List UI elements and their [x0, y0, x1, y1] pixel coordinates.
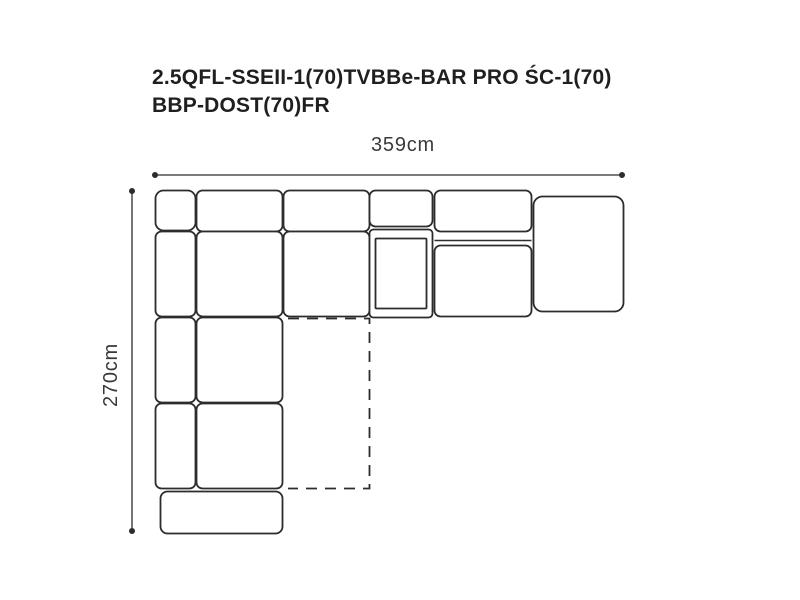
backrest-segment-2: [197, 191, 283, 232]
seat-1: [197, 232, 283, 317]
seat-3: [435, 246, 532, 317]
depth-dimension-bottom-dot: [129, 528, 135, 534]
width-dimension-left-dot: [152, 172, 158, 178]
depth-dimension-top-dot: [129, 188, 135, 194]
bar-backrest: [370, 191, 433, 227]
bar-inner-panel: [376, 239, 427, 309]
diagram-page: 2.5QFL-SSEII-1(70)TVBBe-BAR PRO ŚC-1(70)…: [0, 0, 800, 600]
left-arm-lower: [156, 404, 196, 489]
backrest-segment-4: [435, 191, 532, 232]
left-arm-mid: [156, 318, 196, 403]
depth-dimension-line: [129, 188, 135, 534]
corner-backrest: [156, 191, 196, 231]
sofa-technical-drawing: [0, 0, 800, 600]
seat-4: [197, 318, 283, 403]
right-addon-module: [534, 197, 624, 312]
seat-5: [197, 404, 283, 489]
seat-2: [284, 232, 370, 317]
width-dimension-right-dot: [619, 172, 625, 178]
backrest-segment-3: [284, 191, 370, 232]
left-arm-upper: [156, 232, 196, 317]
width-dimension-line: [152, 172, 625, 178]
foldout-dashed-outline: [288, 319, 370, 489]
front-ottoman: [161, 492, 283, 534]
